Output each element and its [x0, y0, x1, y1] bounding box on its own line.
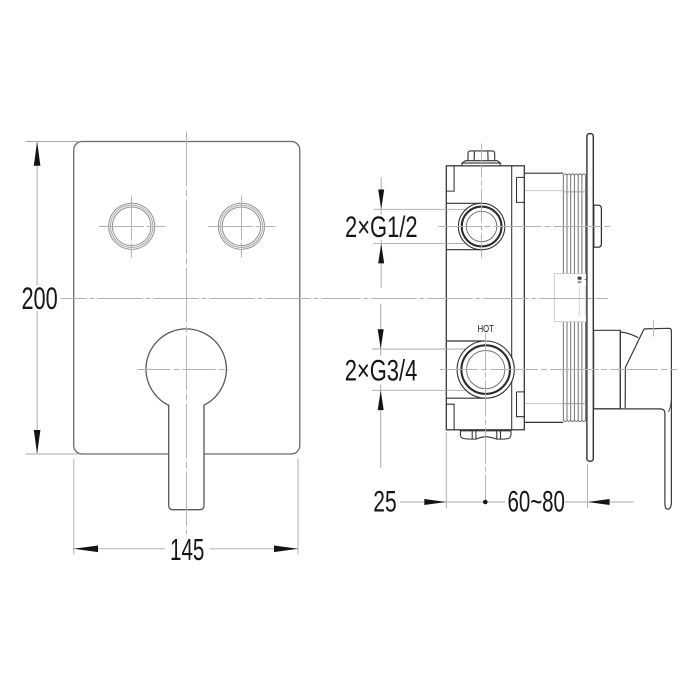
- svg-text:2×G3/4: 2×G3/4: [345, 355, 418, 388]
- svg-text:25: 25: [373, 486, 396, 519]
- svg-text:2×G1/2: 2×G1/2: [345, 211, 418, 244]
- svg-text:145: 145: [170, 532, 204, 567]
- svg-text:60~80: 60~80: [507, 486, 565, 519]
- svg-text:200: 200: [21, 280, 57, 316]
